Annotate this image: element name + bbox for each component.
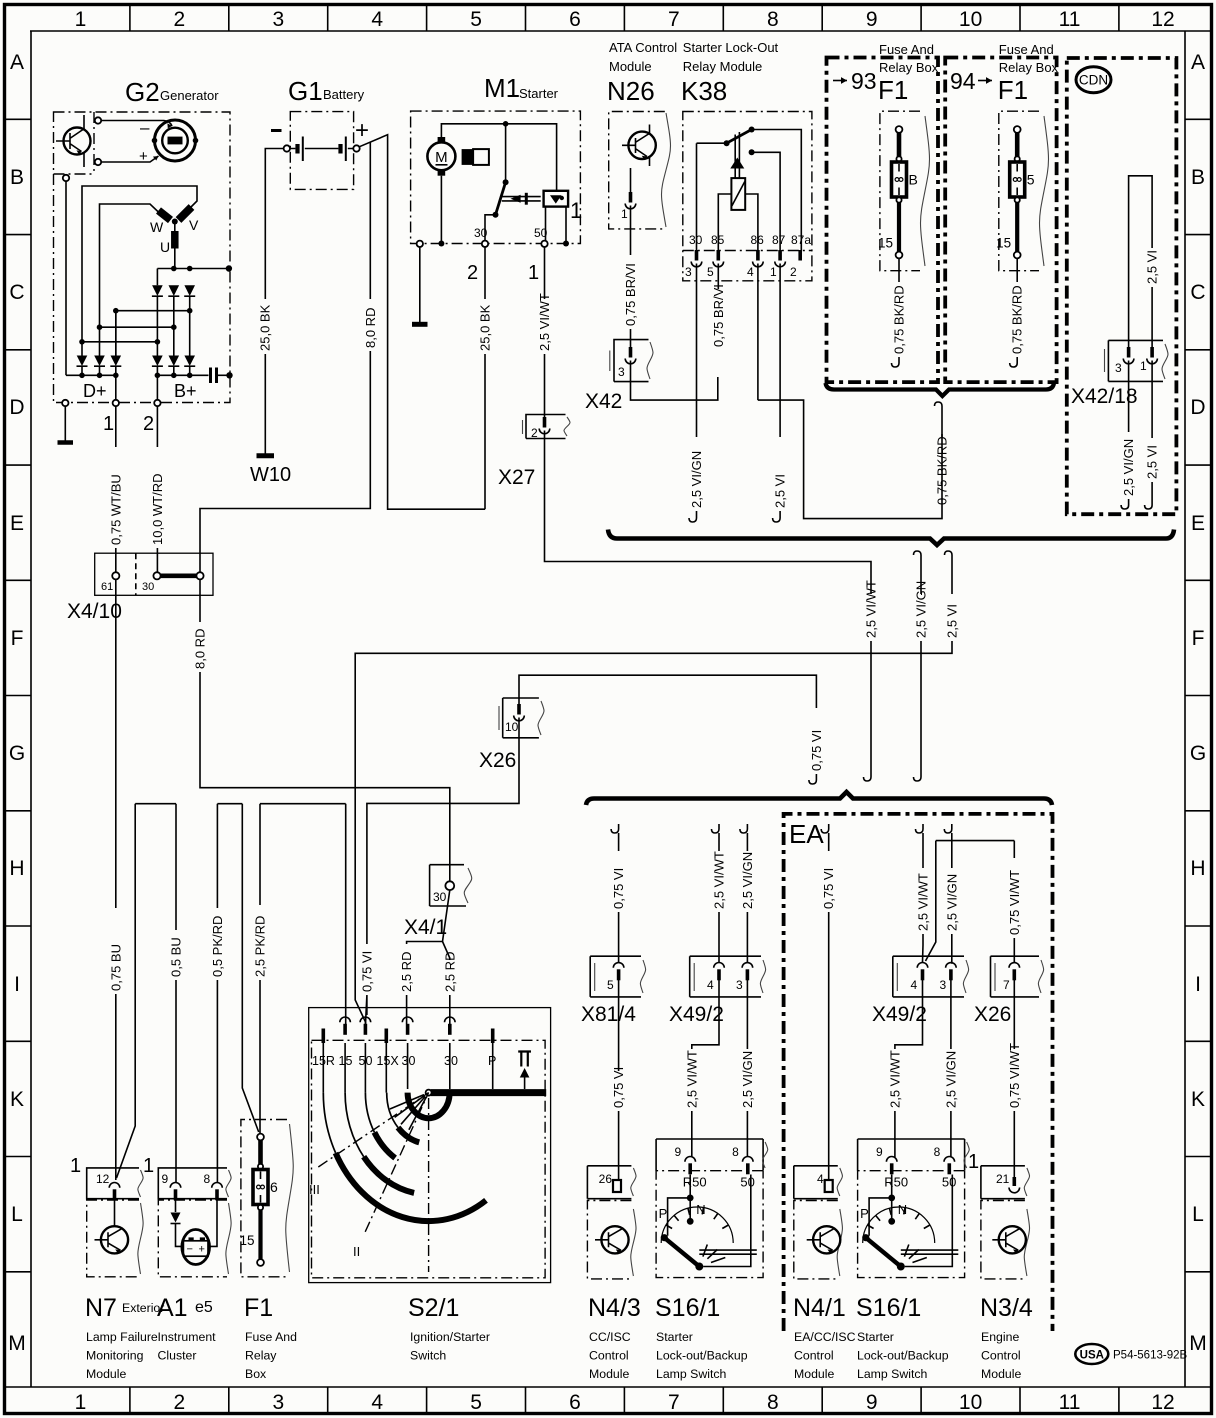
svg-text:B: B: [10, 166, 24, 189]
svg-text:9: 9: [866, 8, 878, 31]
svg-text:K38: K38: [681, 76, 727, 106]
svg-text:N4/3: N4/3: [588, 1294, 641, 1322]
svg-text:Starter: Starter: [656, 1330, 693, 1344]
svg-text:2,5 VI/GN: 2,5 VI/GN: [1121, 439, 1136, 496]
svg-text:7: 7: [668, 8, 680, 31]
svg-text:3: 3: [736, 978, 743, 992]
svg-text:S16/1: S16/1: [856, 1294, 921, 1322]
svg-text:H: H: [1190, 857, 1205, 880]
svg-text:U: U: [160, 239, 170, 255]
svg-text:Lock-out/Backup: Lock-out/Backup: [857, 1349, 949, 1363]
svg-text:0,75 VI: 0,75 VI: [359, 951, 374, 992]
svg-text:5: 5: [470, 8, 482, 31]
svg-text:86: 86: [751, 233, 765, 247]
svg-text:30: 30: [433, 890, 447, 904]
svg-text:11: 11: [1059, 8, 1081, 31]
svg-text:S2/1: S2/1: [408, 1294, 459, 1322]
svg-text:M: M: [8, 1332, 26, 1355]
svg-text:Starter: Starter: [857, 1330, 894, 1344]
svg-text:3: 3: [1115, 361, 1122, 375]
svg-text:P: P: [659, 1206, 668, 1221]
svg-text:CC/ISC: CC/ISC: [589, 1330, 631, 1344]
svg-text:R50: R50: [884, 1174, 908, 1189]
svg-text:Battery: Battery: [323, 87, 365, 102]
svg-text:Control: Control: [981, 1349, 1021, 1363]
svg-text:3: 3: [940, 978, 947, 992]
svg-text:2,5 VI/GN: 2,5 VI/GN: [740, 852, 755, 909]
svg-text:X42: X42: [585, 390, 622, 413]
svg-text:61: 61: [101, 581, 113, 593]
svg-text:Relay Box: Relay Box: [999, 60, 1059, 75]
svg-text:Box: Box: [245, 1367, 267, 1381]
svg-text:X27: X27: [498, 466, 535, 489]
svg-text:0,75 BR/VI: 0,75 BR/VI: [711, 284, 726, 347]
svg-text:0,5 BU: 0,5 BU: [169, 937, 184, 977]
svg-text:C: C: [1190, 281, 1205, 304]
svg-text:G: G: [1190, 742, 1206, 765]
svg-text:5: 5: [470, 1391, 482, 1414]
svg-text:+: +: [355, 117, 369, 144]
svg-text:10,0 WT/RD: 10,0 WT/RD: [150, 473, 165, 545]
svg-text:4: 4: [911, 978, 918, 992]
svg-text:0,75 BK/RD: 0,75 BK/RD: [1010, 285, 1025, 354]
svg-text:D+: D+: [83, 381, 107, 401]
svg-text:Starter Lock-Out: Starter Lock-Out: [683, 40, 779, 55]
svg-text:1: 1: [75, 1391, 87, 1414]
svg-text:F: F: [1192, 627, 1205, 650]
svg-text:Monitoring: Monitoring: [86, 1349, 144, 1363]
svg-text:F1: F1: [998, 75, 1028, 105]
svg-text:30: 30: [142, 581, 154, 593]
svg-text:Switch: Switch: [410, 1349, 446, 1363]
svg-text:4: 4: [817, 1172, 824, 1186]
svg-text:2: 2: [174, 1391, 186, 1414]
svg-text:Lamp Switch: Lamp Switch: [656, 1367, 727, 1381]
svg-text:A: A: [1191, 51, 1205, 74]
svg-text:50: 50: [534, 226, 548, 240]
svg-text:0,75 VI: 0,75 VI: [821, 868, 836, 909]
svg-text:8: 8: [204, 1172, 211, 1186]
svg-text:X26: X26: [974, 1003, 1011, 1026]
svg-text:III: III: [309, 1182, 320, 1197]
svg-text:F1: F1: [244, 1294, 273, 1322]
svg-text:87: 87: [772, 233, 786, 247]
svg-text:2,5 RD: 2,5 RD: [442, 952, 457, 992]
svg-text:W10: W10: [250, 464, 291, 486]
svg-text:2,5 RD: 2,5 RD: [399, 952, 414, 992]
svg-text:Module: Module: [981, 1367, 1021, 1381]
svg-text:2,5 VI/GN: 2,5 VI/GN: [944, 874, 959, 931]
svg-text:25,0 BK: 25,0 BK: [258, 304, 273, 351]
svg-text:2,5 VI: 2,5 VI: [1145, 250, 1160, 284]
svg-text:Fuse And: Fuse And: [999, 42, 1054, 57]
svg-text:II: II: [353, 1244, 360, 1259]
svg-text:Lamp Failure: Lamp Failure: [86, 1330, 158, 1344]
svg-text:7: 7: [668, 1391, 680, 1414]
svg-text:X4/1: X4/1: [404, 916, 447, 939]
svg-text:K: K: [10, 1088, 24, 1111]
svg-text:Engine: Engine: [981, 1330, 1019, 1344]
svg-text:26: 26: [599, 1172, 613, 1186]
svg-text:2: 2: [143, 413, 154, 435]
svg-text:2,5 VI/WT: 2,5 VI/WT: [864, 580, 879, 638]
svg-text:F: F: [11, 627, 24, 650]
svg-text:4: 4: [371, 8, 383, 31]
svg-text:Relay Module: Relay Module: [683, 59, 763, 74]
svg-text:12: 12: [1151, 8, 1174, 31]
svg-text:N3/4: N3/4: [980, 1294, 1033, 1322]
svg-text:15: 15: [996, 236, 1011, 251]
svg-text:1: 1: [70, 1155, 81, 1177]
svg-text:5: 5: [607, 978, 614, 992]
svg-text:2,5 VI/GN: 2,5 VI/GN: [689, 451, 704, 508]
svg-text:I: I: [1195, 973, 1201, 996]
svg-text:12: 12: [96, 1172, 110, 1186]
svg-text:85: 85: [711, 233, 725, 247]
svg-text:+: +: [139, 148, 148, 165]
svg-text:0,75 VI/WT: 0,75 VI/WT: [1007, 870, 1022, 935]
svg-text:P: P: [860, 1206, 869, 1221]
svg-text:3: 3: [685, 265, 692, 279]
svg-text:2,5 VI: 2,5 VI: [1145, 445, 1160, 479]
svg-text:2,5 VI/WT: 2,5 VI/WT: [684, 1050, 699, 1108]
svg-text:11: 11: [1059, 1391, 1081, 1414]
svg-text:30: 30: [444, 1054, 458, 1068]
svg-text:6: 6: [569, 1391, 581, 1414]
svg-text:0,75 BR/VI: 0,75 BR/VI: [623, 263, 638, 326]
svg-text:N4/1: N4/1: [793, 1294, 846, 1322]
svg-text:X49/2: X49/2: [669, 1003, 724, 1026]
svg-text:9: 9: [162, 1172, 169, 1186]
svg-text:B+: B+: [174, 381, 197, 401]
svg-text:15X: 15X: [377, 1054, 400, 1068]
svg-text:0,75 VI: 0,75 VI: [611, 1067, 626, 1108]
svg-text:2,5 VI/GN: 2,5 VI/GN: [914, 581, 929, 638]
svg-text:1: 1: [770, 265, 777, 279]
svg-text:8: 8: [767, 1391, 779, 1414]
svg-text:X81/4: X81/4: [581, 1003, 636, 1026]
svg-text:M: M: [435, 149, 448, 166]
svg-text:3: 3: [618, 365, 625, 379]
svg-text:8,0 RD: 8,0 RD: [193, 629, 208, 669]
svg-text:2,5 VI: 2,5 VI: [773, 474, 788, 508]
svg-text:R50: R50: [683, 1174, 707, 1189]
svg-text:15: 15: [239, 1233, 254, 1248]
svg-text:X42/18: X42/18: [1071, 385, 1138, 408]
svg-text:C: C: [9, 281, 24, 304]
svg-text:93: 93: [851, 68, 877, 94]
svg-text:K: K: [1191, 1088, 1205, 1111]
svg-text:L: L: [11, 1203, 23, 1226]
svg-text:F1: F1: [878, 75, 908, 105]
svg-text:2: 2: [467, 262, 478, 284]
svg-text:L: L: [1192, 1203, 1204, 1226]
svg-text:Lock-out/Backup: Lock-out/Backup: [656, 1349, 748, 1363]
svg-text:30: 30: [689, 233, 703, 247]
svg-text:50: 50: [942, 1174, 956, 1189]
svg-text:8,0 RD: 8,0 RD: [363, 308, 378, 348]
svg-text:X4/10: X4/10: [67, 600, 122, 623]
svg-text:2,5 VI/WT: 2,5 VI/WT: [537, 293, 552, 351]
svg-text:N26: N26: [607, 76, 655, 106]
svg-text:1: 1: [968, 1151, 979, 1173]
svg-text:–: –: [140, 118, 150, 137]
svg-text:2,5 VI: 2,5 VI: [945, 604, 960, 638]
svg-text:W: W: [150, 219, 164, 235]
svg-text:2,5 VI/GN: 2,5 VI/GN: [943, 1051, 958, 1108]
svg-text:Module: Module: [86, 1367, 126, 1381]
svg-text:X26: X26: [479, 749, 516, 772]
svg-text:CDN: CDN: [1079, 73, 1108, 88]
svg-text:2,5 VI/WT: 2,5 VI/WT: [887, 1050, 902, 1108]
svg-text:USA: USA: [1080, 1350, 1104, 1362]
svg-text:0,75 VI: 0,75 VI: [611, 868, 626, 909]
svg-text:0,75 BK/RD: 0,75 BK/RD: [935, 436, 950, 505]
svg-text:7: 7: [1003, 978, 1010, 992]
svg-text:Fuse And: Fuse And: [245, 1330, 297, 1344]
svg-text:4: 4: [707, 978, 714, 992]
svg-text:E: E: [1191, 512, 1205, 535]
svg-text:4: 4: [371, 1391, 383, 1414]
svg-text:Ignition/Starter: Ignition/Starter: [410, 1330, 490, 1344]
svg-text:0,75 BU: 0,75 BU: [108, 944, 123, 991]
svg-text:S16/1: S16/1: [655, 1294, 720, 1322]
svg-text:1: 1: [103, 413, 114, 435]
svg-text:21: 21: [996, 1172, 1010, 1186]
svg-text:M: M: [1189, 1332, 1207, 1355]
svg-text:8: 8: [732, 1145, 739, 1159]
svg-text:4: 4: [747, 265, 754, 279]
svg-text:D: D: [9, 396, 24, 419]
svg-text:50: 50: [740, 1174, 754, 1189]
svg-text:M1: M1: [484, 73, 520, 103]
svg-text:B: B: [1191, 166, 1205, 189]
svg-text:Control: Control: [589, 1349, 629, 1363]
svg-text:5: 5: [707, 265, 714, 279]
svg-text:EA/CC/ISC: EA/CC/ISC: [794, 1330, 856, 1344]
svg-text:10: 10: [959, 1391, 982, 1414]
svg-text:A1: A1: [157, 1294, 188, 1322]
svg-text:8: 8: [767, 8, 779, 31]
svg-text:ATA Control: ATA Control: [609, 40, 677, 55]
svg-text:B: B: [909, 172, 918, 188]
svg-text:87a: 87a: [791, 233, 811, 247]
svg-text:5: 5: [1027, 172, 1035, 188]
svg-text:30: 30: [474, 226, 488, 240]
svg-text:I: I: [14, 973, 20, 996]
svg-text:2: 2: [790, 265, 797, 279]
svg-text:9: 9: [675, 1145, 682, 1159]
svg-text:EA: EA: [789, 819, 824, 849]
svg-text:30: 30: [402, 1054, 416, 1068]
svg-text:0,75 BK/RD: 0,75 BK/RD: [892, 285, 907, 354]
svg-text:1: 1: [528, 262, 539, 284]
svg-text:3: 3: [272, 1391, 284, 1414]
svg-text:2,5 PK/RD: 2,5 PK/RD: [253, 916, 268, 977]
svg-text:Instrument: Instrument: [158, 1330, 217, 1344]
svg-text:Relay Box: Relay Box: [879, 60, 939, 75]
svg-text:Cluster: Cluster: [158, 1349, 197, 1363]
svg-text:Starter: Starter: [519, 86, 559, 101]
svg-text:0,75 WT/BU: 0,75 WT/BU: [108, 474, 123, 545]
svg-text:V: V: [189, 217, 199, 233]
svg-text:1: 1: [621, 207, 628, 221]
svg-text:Fuse And: Fuse And: [879, 42, 934, 57]
svg-text:G2: G2: [125, 77, 160, 107]
svg-text:Lamp Switch: Lamp Switch: [857, 1367, 928, 1381]
svg-text:Module: Module: [589, 1367, 629, 1381]
svg-text:25,0 BK: 25,0 BK: [478, 304, 493, 351]
svg-text:6: 6: [569, 8, 581, 31]
svg-text:0,75 VI/WT: 0,75 VI/WT: [1007, 1043, 1022, 1108]
svg-text:9: 9: [876, 1145, 883, 1159]
svg-text:6: 6: [270, 1179, 278, 1195]
svg-text:9: 9: [866, 1391, 878, 1414]
svg-text:Control: Control: [794, 1349, 834, 1363]
svg-text:12: 12: [1151, 1391, 1174, 1414]
svg-text:e5: e5: [195, 1299, 213, 1316]
svg-text:N: N: [696, 1202, 705, 1217]
svg-text:10: 10: [959, 8, 982, 31]
svg-text:1: 1: [75, 8, 87, 31]
svg-text:0,75 VI: 0,75 VI: [809, 730, 824, 771]
svg-text:2: 2: [174, 8, 186, 31]
svg-text:E: E: [10, 512, 24, 535]
svg-text:D: D: [1190, 396, 1205, 419]
svg-text:X49/2: X49/2: [872, 1003, 927, 1026]
svg-text:3: 3: [272, 8, 284, 31]
svg-text:+: +: [199, 1244, 205, 1256]
svg-text:P54-5613-92B: P54-5613-92B: [1113, 1350, 1187, 1362]
svg-text:10: 10: [505, 720, 519, 734]
svg-text:2,5 VI/WT: 2,5 VI/WT: [916, 873, 931, 931]
svg-text:G: G: [9, 742, 25, 765]
svg-text:Module: Module: [609, 59, 652, 74]
svg-text:Generator: Generator: [160, 88, 219, 103]
svg-text:N: N: [898, 1202, 907, 1217]
svg-text:G1: G1: [288, 76, 323, 106]
svg-text:A: A: [10, 51, 24, 74]
svg-text:2,5 VI/GN: 2,5 VI/GN: [740, 1051, 755, 1108]
svg-text:1: 1: [570, 198, 582, 223]
svg-text:−: −: [187, 1244, 193, 1256]
svg-text:1: 1: [1140, 359, 1147, 373]
svg-text:94: 94: [950, 68, 976, 94]
svg-text:N7: N7: [85, 1294, 117, 1322]
svg-text:2: 2: [531, 426, 538, 440]
svg-text:8: 8: [934, 1145, 941, 1159]
svg-text:0,5 PK/RD: 0,5 PK/RD: [210, 916, 225, 977]
svg-text:Relay: Relay: [245, 1349, 277, 1363]
svg-text:1: 1: [143, 1155, 154, 1177]
svg-text:2,5 VI/WT: 2,5 VI/WT: [712, 851, 727, 909]
svg-text:15: 15: [878, 236, 893, 251]
svg-text:Module: Module: [794, 1367, 834, 1381]
svg-text:H: H: [9, 857, 24, 880]
